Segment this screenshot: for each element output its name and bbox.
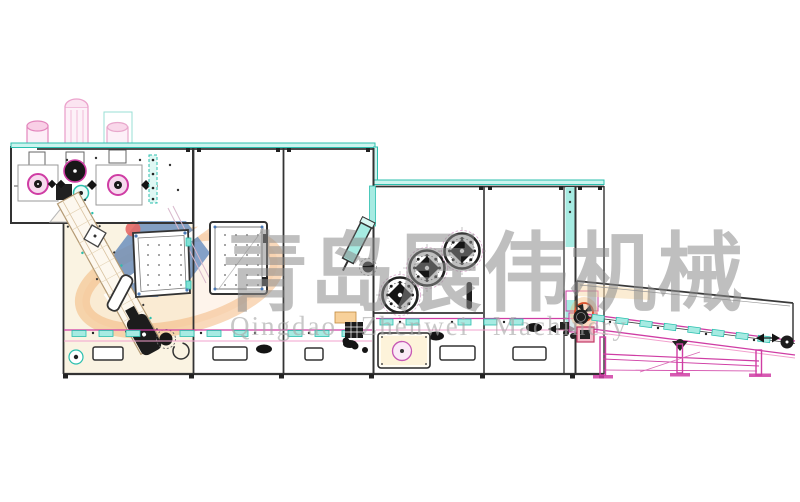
carding-rollers [374, 227, 486, 319]
output-conveyor [560, 281, 795, 379]
motor-unit-3 [104, 112, 132, 147]
machinery-cad-drawing [0, 0, 800, 502]
filter-strip [149, 155, 157, 203]
motor-unit-2 [65, 99, 88, 147]
pneumatic-cylinder [337, 186, 377, 276]
conveyor-feet [593, 373, 771, 379]
machine-line-drawing-page: 青岛展伟机械 Qingdao Zhenwei Machinery [0, 0, 800, 502]
door-handle [263, 234, 268, 243]
feeder-cabinet [11, 99, 193, 223]
volute-fan-box [378, 333, 430, 368]
opener-perforated-door [210, 222, 268, 294]
hopper-perforated-door [133, 230, 191, 297]
door-handle [262, 277, 268, 286]
